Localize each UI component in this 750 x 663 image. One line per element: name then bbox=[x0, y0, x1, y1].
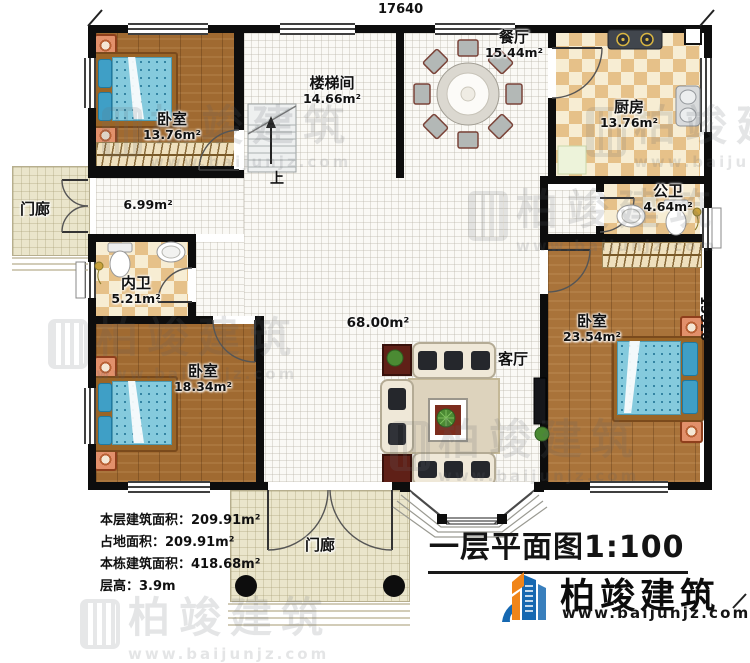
door-opening bbox=[213, 316, 255, 324]
window bbox=[590, 481, 668, 493]
door-opening bbox=[596, 192, 604, 226]
wall bbox=[548, 25, 556, 48]
nightstand bbox=[680, 420, 703, 443]
wall bbox=[540, 234, 712, 242]
area-statistics: 本层建筑面积：209.91m² 占地面积：209.91m² 本栋建筑面积：418… bbox=[100, 510, 260, 598]
dimension-right: 15320 bbox=[697, 296, 712, 341]
coffee-table bbox=[428, 398, 468, 442]
watermark-site: www.baijunjz.com bbox=[128, 645, 332, 663]
window bbox=[84, 388, 96, 444]
porch-steps bbox=[228, 604, 410, 625]
wall bbox=[256, 316, 264, 490]
floor-plan: 柏竣建筑 www.baijunjz.com 柏竣建筑 www.baijunjz.… bbox=[0, 0, 750, 632]
room-label-living: 客厅 bbox=[498, 352, 528, 368]
wardrobe bbox=[96, 142, 236, 168]
wardrobe bbox=[602, 242, 702, 268]
title-scale: 1:100 bbox=[584, 530, 685, 565]
door-opening bbox=[188, 268, 196, 302]
window bbox=[84, 58, 96, 108]
wall bbox=[396, 25, 404, 178]
title-text: 一层平面图 bbox=[429, 530, 584, 565]
wall bbox=[540, 184, 548, 482]
room-label-bedroom-bottom-left: 卧室18.34m² bbox=[174, 364, 232, 393]
room-label-private-bathroom: 内卫5.21m² bbox=[111, 276, 160, 305]
wall bbox=[88, 166, 244, 178]
porch-steps bbox=[12, 258, 88, 270]
door-opening bbox=[234, 130, 244, 170]
room-label-corridor: 6.99m² bbox=[123, 198, 172, 211]
window bbox=[280, 23, 355, 35]
watermark-logo-icon bbox=[48, 319, 88, 369]
stat-line: 占地面积：209.91m² bbox=[100, 532, 260, 554]
window bbox=[128, 481, 210, 493]
bay-opening bbox=[404, 482, 540, 490]
room-label-porch-bottom: 门廊 bbox=[305, 538, 335, 554]
dimension-top: 17640 bbox=[378, 2, 423, 17]
sofa bbox=[412, 342, 496, 379]
brand-logo-icon bbox=[496, 564, 554, 626]
room-label-dining: 餐厅15.44m² bbox=[485, 30, 543, 59]
room-label-stairwell: 楼梯间14.66m² bbox=[303, 76, 361, 105]
wall bbox=[548, 98, 556, 184]
corner-cabinet bbox=[382, 344, 412, 376]
wall bbox=[88, 234, 196, 242]
room-label-bedroom-right: 卧室23.54m² bbox=[563, 314, 621, 343]
room-label-bedroom-top-left: 卧室13.76m² bbox=[143, 112, 201, 141]
hall-strip-floor bbox=[196, 242, 244, 316]
window bbox=[702, 208, 714, 248]
drawing-title: 一层平面图1:100 bbox=[428, 522, 688, 574]
stat-line: 层高：3.9m bbox=[100, 576, 260, 598]
wall bbox=[540, 176, 712, 184]
stat-line: 本层建筑面积：209.91m² bbox=[100, 510, 260, 532]
room-label-porch-left: 门廊 bbox=[20, 202, 50, 218]
vestibule-floor bbox=[548, 190, 596, 234]
window bbox=[128, 23, 208, 35]
window bbox=[84, 262, 96, 298]
sofa bbox=[380, 379, 414, 454]
watermark-logo-icon bbox=[80, 599, 120, 649]
room-label-public-bathroom: 公卫4.64m² bbox=[643, 184, 692, 213]
window bbox=[700, 58, 712, 132]
room-label-kitchen: 厨房13.76m² bbox=[600, 100, 658, 129]
stairs-up-label: 上 bbox=[270, 168, 284, 188]
brand-website: www.baijunjz.com bbox=[562, 604, 750, 622]
bed bbox=[92, 376, 178, 452]
door-opening bbox=[540, 250, 548, 294]
room-label-hall: 68.00m² bbox=[347, 316, 410, 330]
door-opening bbox=[268, 482, 392, 490]
window bbox=[684, 27, 702, 45]
sofa bbox=[412, 452, 496, 486]
bed bbox=[612, 336, 704, 422]
stat-line: 本栋建筑面积：418.68m² bbox=[100, 554, 260, 576]
